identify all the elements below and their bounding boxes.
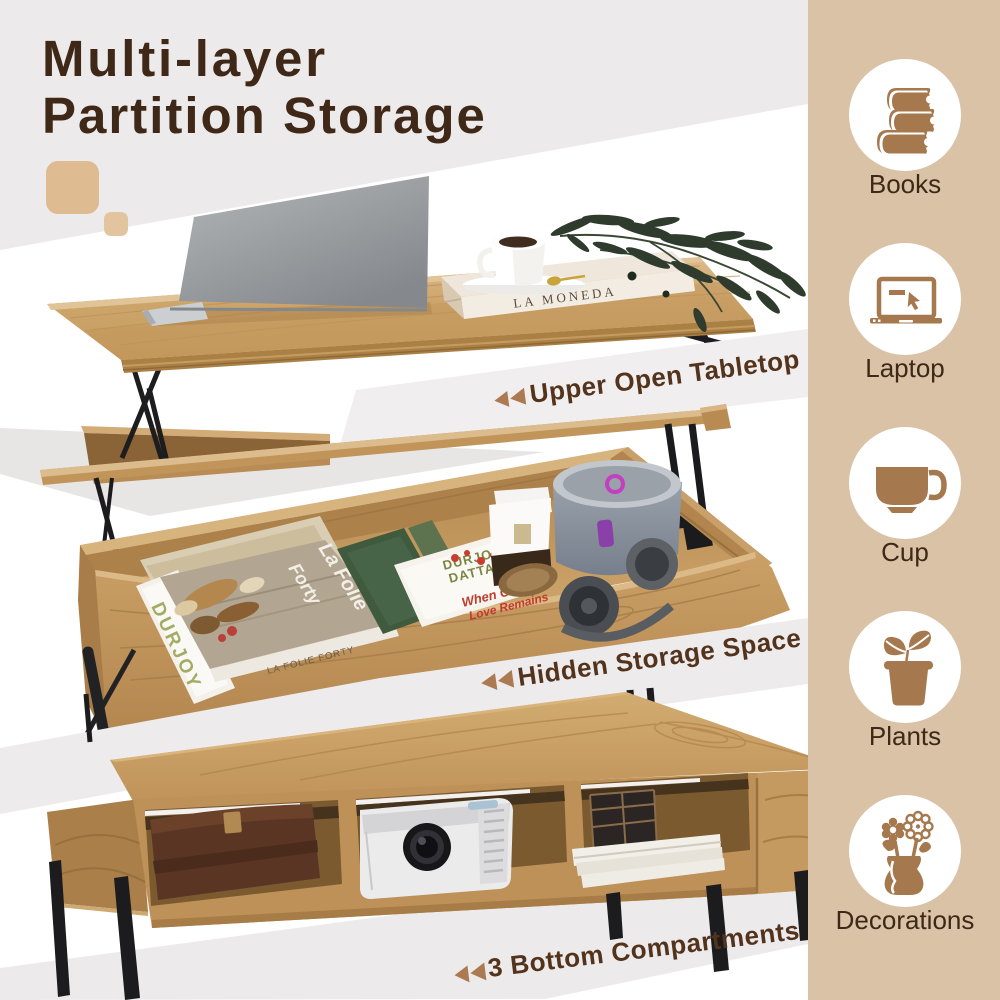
svg-text:Plants: Plants	[869, 721, 941, 751]
svg-text:Multi-layer: Multi-layer	[42, 30, 328, 87]
svg-text:Cup: Cup	[881, 537, 929, 567]
svg-text:Laptop: Laptop	[865, 353, 945, 383]
svg-text:Books: Books	[869, 169, 941, 199]
svg-text:Partition Storage: Partition Storage	[42, 87, 487, 144]
svg-text:Decorations: Decorations	[836, 905, 975, 935]
